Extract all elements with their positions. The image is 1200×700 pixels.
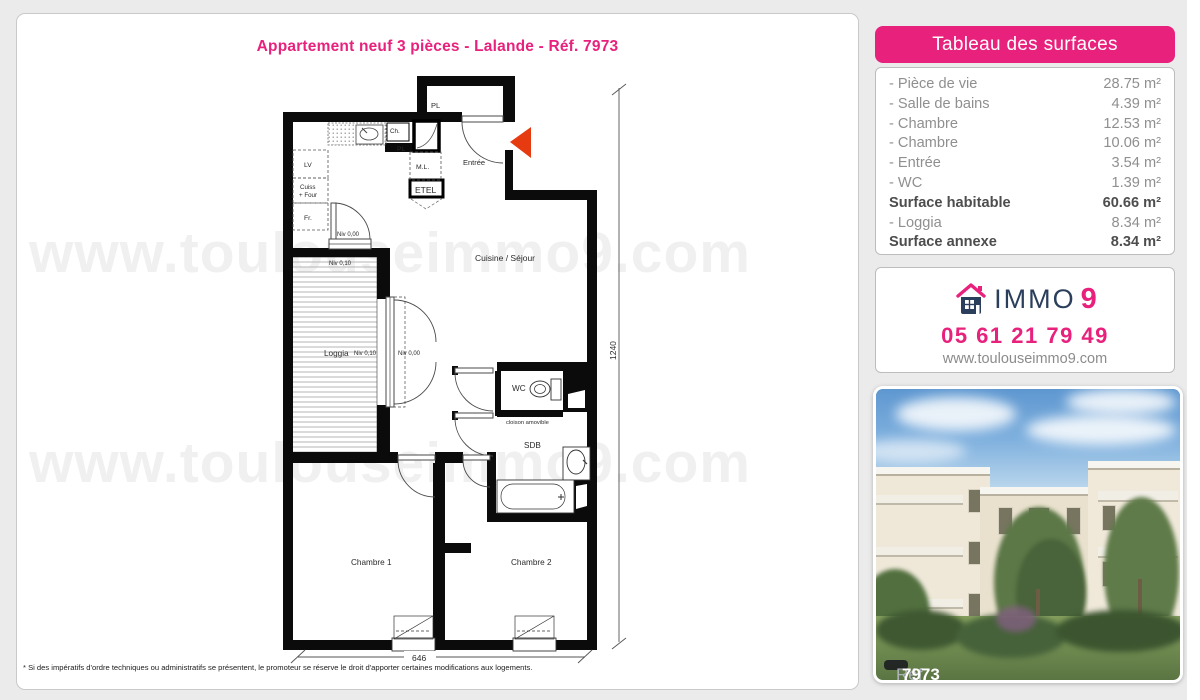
watermark-text: www.toulouseimmo9.com [29,220,751,286]
building-photo: Réf.7973 [873,386,1183,683]
floor-plan-panel: Appartement neuf 3 pièces - Lalande - Ré… [16,13,859,690]
table-row-total-habitable: Surface habitable60.66 m² [889,194,1161,214]
plan-footnote: * Si des impératifs d'ordre techniques o… [23,663,843,672]
row-value: 1.39 m² [1112,174,1161,194]
surfaces-header: Tableau des surfaces [875,26,1175,63]
table-row: - Salle de bains4.39 m² [889,95,1161,115]
row-label: Surface habitable [889,194,1011,214]
row-label: - Entrée [889,154,941,174]
row-value: 8.34 m² [1112,214,1161,234]
contact-card: IMMO9 05 61 21 79 49 www.toulouseimmo9.c… [875,267,1175,373]
row-label: - WC [889,174,922,194]
row-label: - Pièce de vie [889,75,977,95]
row-value: 60.66 m² [1103,194,1161,214]
ref-number: 7973 [902,665,940,683]
brand-digit: 9 [1081,283,1097,316]
row-value: 12.53 m² [1103,115,1161,135]
page-right-margin [1187,0,1200,700]
website-url: www.toulouseimmo9.com [876,351,1174,367]
surfaces-table: - Pièce de vie28.75 m² - Salle de bains4… [875,67,1175,255]
phone-number: 05 61 21 79 49 [876,323,1174,349]
page-title: Appartement neuf 3 pièces - Lalande - Ré… [17,38,858,56]
photo-flowers [996,606,1036,632]
table-row: - Loggia8.34 m² [889,214,1161,234]
photo-cloud [1026,415,1176,445]
photo-bush [876,610,966,650]
table-row: - Pièce de vie28.75 m² [889,75,1161,95]
row-label: - Salle de bains [889,95,990,115]
row-value: 3.54 m² [1112,154,1161,174]
row-value: 10.06 m² [1103,134,1161,154]
row-label: - Chambre [889,134,958,154]
watermark-text: www.toulouseimmo9.com [29,430,751,496]
table-row: - Entrée3.54 m² [889,154,1161,174]
table-row: - WC1.39 m² [889,174,1161,194]
photo-cloud [1066,389,1176,415]
table-row: - Chambre10.06 m² [889,134,1161,154]
table-row-total-annexe: Surface annexe8.34 m² [889,233,1161,253]
immo9-logo-icon [953,281,989,317]
row-label: Surface annexe [889,233,997,253]
row-value: 28.75 m² [1103,75,1161,95]
row-value: 8.34 m² [1111,233,1161,253]
row-label: - Chambre [889,115,958,135]
photo-cloud [896,397,1016,431]
immo9-logo: IMMO9 [876,281,1174,317]
brand-text: IMMO [994,284,1076,315]
row-label: - Loggia [889,214,942,234]
photo-ref-badge: Réf.7973 [884,660,908,670]
row-value: 4.39 m² [1112,95,1161,115]
table-row: - Chambre12.53 m² [889,115,1161,135]
photo-bush [1056,610,1183,652]
